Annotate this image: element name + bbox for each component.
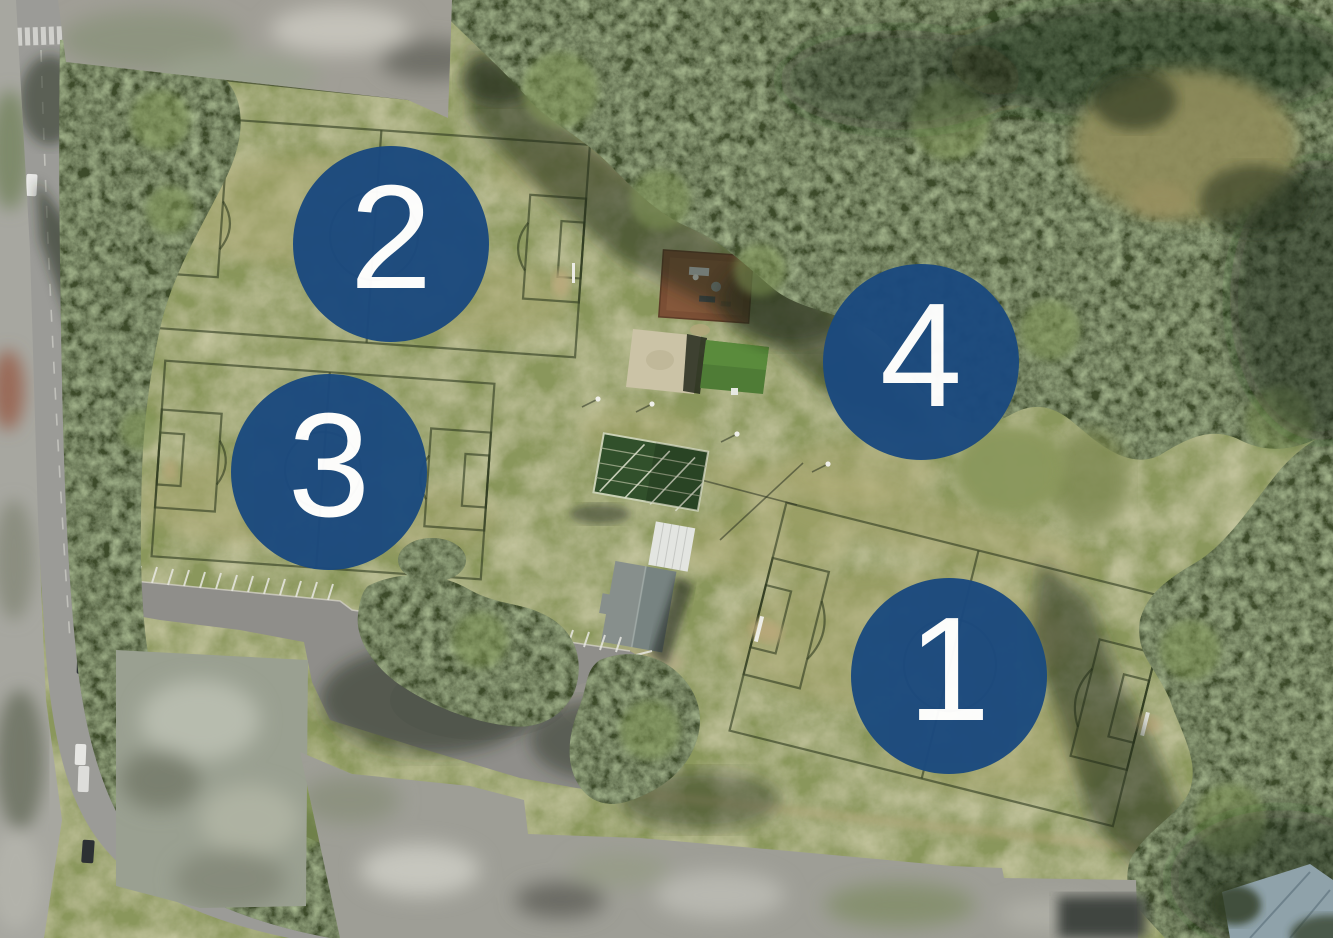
field-marker-label: 3 bbox=[288, 392, 370, 540]
field-marker-label: 2 bbox=[350, 164, 432, 312]
field-marker-label: 1 bbox=[908, 596, 990, 744]
aerial-map: 1234 bbox=[0, 0, 1333, 938]
field-marker-2[interactable]: 2 bbox=[293, 146, 489, 342]
marker-layer: 1234 bbox=[0, 0, 1333, 938]
field-marker-label: 4 bbox=[880, 282, 962, 430]
field-marker-1[interactable]: 1 bbox=[851, 578, 1047, 774]
field-marker-3[interactable]: 3 bbox=[231, 374, 427, 570]
field-marker-4[interactable]: 4 bbox=[823, 264, 1019, 460]
